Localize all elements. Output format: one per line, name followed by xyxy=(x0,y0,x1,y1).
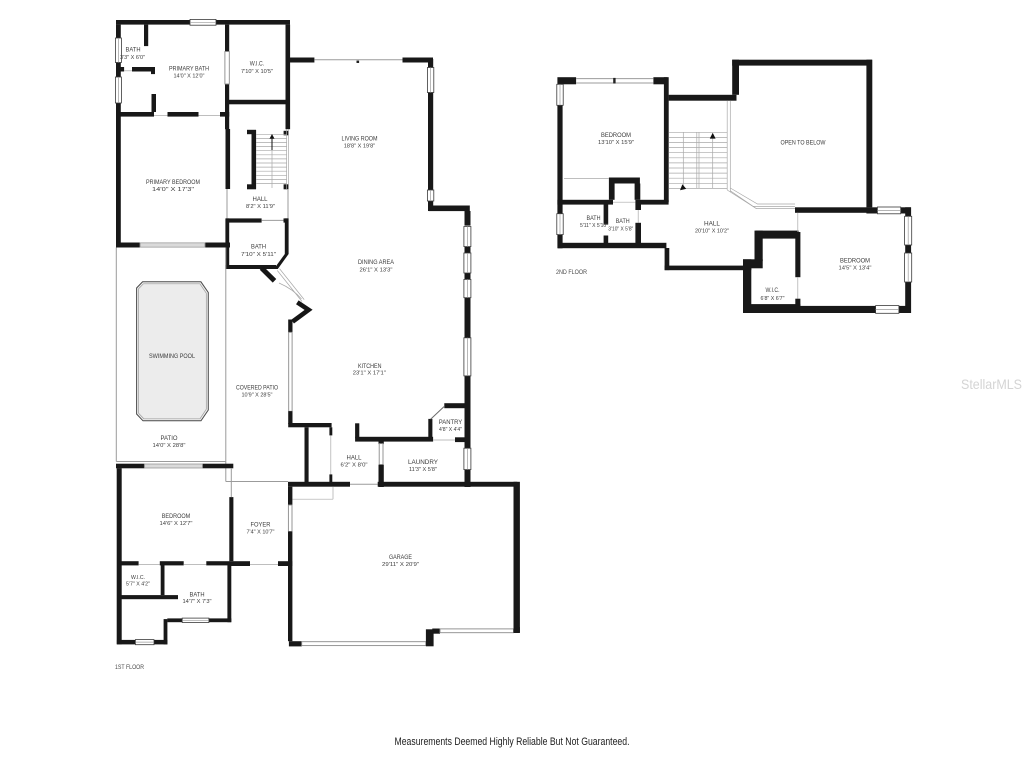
svg-text:4'8" X 4'4": 4'8" X 4'4" xyxy=(439,427,462,433)
svg-text:5'7" X 4'2": 5'7" X 4'2" xyxy=(126,582,150,588)
svg-text:8'2" X 11'9": 8'2" X 11'9" xyxy=(246,204,275,210)
svg-text:26'1" X 13'3": 26'1" X 13'3" xyxy=(360,267,393,273)
svg-text:W.I.C.: W.I.C. xyxy=(766,287,780,294)
svg-text:29'11" X 20'9": 29'11" X 20'9" xyxy=(382,562,419,568)
svg-text:PRIMARY BATH: PRIMARY BATH xyxy=(169,66,209,73)
svg-text:GARAGE: GARAGE xyxy=(389,554,412,561)
svg-text:3'10" X 5'8": 3'10" X 5'8" xyxy=(608,226,633,232)
svg-text:PANTRY: PANTRY xyxy=(439,419,463,426)
svg-text:BEDROOM: BEDROOM xyxy=(162,513,191,520)
svg-text:13'10" X 15'9": 13'10" X 15'9" xyxy=(598,140,634,146)
svg-text:BATH: BATH xyxy=(190,591,205,598)
svg-text:10'9" X 28'5": 10'9" X 28'5" xyxy=(242,393,273,399)
svg-text:14'0" X 12'0": 14'0" X 12'0" xyxy=(174,74,205,80)
svg-text:LIVING ROOM: LIVING ROOM xyxy=(342,135,378,142)
svg-text:BEDROOM: BEDROOM xyxy=(840,258,870,265)
svg-text:PRIMARY BEDROOM: PRIMARY BEDROOM xyxy=(146,179,200,186)
svg-text:BATH: BATH xyxy=(616,218,630,225)
svg-text:LAUNDRY: LAUNDRY xyxy=(408,459,439,466)
svg-text:14'0" X 28'8": 14'0" X 28'8" xyxy=(153,443,186,449)
svg-text:6'8" X 6'7": 6'8" X 6'7" xyxy=(761,296,785,302)
svg-text:6'2" X 8'0": 6'2" X 8'0" xyxy=(341,463,368,469)
svg-text:BATH: BATH xyxy=(126,47,141,54)
svg-text:23'1" X 17'1": 23'1" X 17'1" xyxy=(353,371,386,377)
svg-text:7'10" X 5'11": 7'10" X 5'11" xyxy=(241,252,276,258)
svg-text:COVERED PATIO: COVERED PATIO xyxy=(236,385,278,392)
svg-text:11'3" X 5'8": 11'3" X 5'8" xyxy=(409,467,437,473)
svg-text:20'10" X 10'2": 20'10" X 10'2" xyxy=(695,229,729,235)
svg-text:PATIO: PATIO xyxy=(161,435,178,442)
svg-text:BATH: BATH xyxy=(251,244,266,251)
svg-text:5'11" X 5'10": 5'11" X 5'10" xyxy=(580,223,608,229)
svg-text:14'5" X 13'4": 14'5" X 13'4" xyxy=(839,266,872,272)
svg-text:3'3" X 6'0": 3'3" X 6'0" xyxy=(120,55,145,61)
svg-text:2ND FLOOR: 2ND FLOOR xyxy=(556,269,587,276)
svg-text:StellarMLS: StellarMLS xyxy=(961,376,1022,392)
svg-text:7'10" X 10'5": 7'10" X 10'5" xyxy=(241,69,273,75)
svg-text:W.I.C.: W.I.C. xyxy=(250,61,265,68)
svg-text:FOYER: FOYER xyxy=(251,522,271,529)
svg-text:HALL: HALL xyxy=(704,221,720,228)
svg-text:14'7" X 7'3": 14'7" X 7'3" xyxy=(183,599,212,605)
svg-text:SWIMMING POOL: SWIMMING POOL xyxy=(149,353,195,360)
svg-text:BATH: BATH xyxy=(587,215,601,222)
svg-text:KITCHEN: KITCHEN xyxy=(358,363,382,370)
svg-text:1ST FLOOR: 1ST FLOOR xyxy=(115,664,144,671)
svg-text:HALL: HALL xyxy=(253,196,268,203)
svg-text:OPEN TO BELOW: OPEN TO BELOW xyxy=(781,140,827,147)
svg-text:Measurements Deemed Highly Rel: Measurements Deemed Highly Reliable But … xyxy=(395,736,630,748)
svg-text:HALL: HALL xyxy=(347,455,362,462)
svg-text:DINING AREA: DINING AREA xyxy=(358,259,395,266)
svg-text:W.I.C.: W.I.C. xyxy=(131,575,145,581)
svg-text:14'6" X 12'7": 14'6" X 12'7" xyxy=(160,521,193,527)
svg-text:BEDROOM: BEDROOM xyxy=(601,132,631,139)
svg-text:7'4" X 10'7": 7'4" X 10'7" xyxy=(247,530,275,536)
svg-text:14'0" X 17'3": 14'0" X 17'3" xyxy=(152,187,194,193)
svg-text:18'8" X 19'8": 18'8" X 19'8" xyxy=(344,143,376,149)
